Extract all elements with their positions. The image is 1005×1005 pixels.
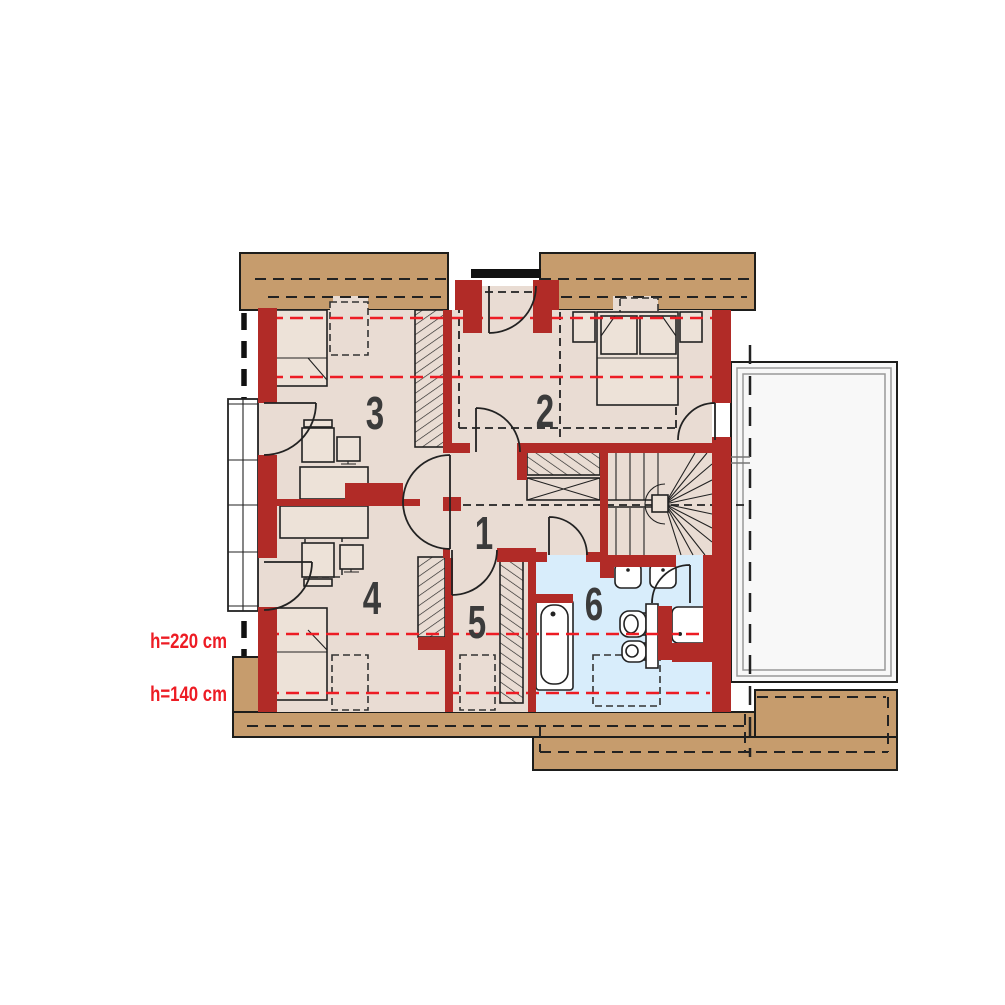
floorplan-drawing: 1 2 3 4 5 6 h=220 cm h=140 cm [0, 0, 1005, 1005]
nightstand-right [680, 312, 702, 342]
stairs-newel [652, 495, 668, 512]
room-label-5: 5 [468, 598, 486, 648]
desk-room4 [280, 506, 368, 538]
monitor-room4 [340, 545, 363, 569]
height-label-140: h=140 cm [150, 683, 227, 706]
chair-back-room3 [304, 420, 332, 427]
gable-windows [228, 399, 258, 611]
height-label-220: h=220 cm [150, 630, 227, 653]
nightstand-left [573, 312, 595, 342]
wardrobe-room5 [500, 560, 523, 703]
wardrobe-room4 [418, 557, 445, 637]
bathtub [536, 600, 573, 690]
bed-room2 [597, 312, 678, 405]
bathroom-partition [646, 604, 658, 668]
room-label-6: 6 [585, 580, 603, 630]
bed-room3 [275, 310, 327, 386]
chair-room4 [302, 543, 334, 577]
monitor-room3 [337, 437, 360, 461]
terrace [731, 362, 897, 682]
room-label-2: 2 [536, 387, 554, 437]
room-label-4: 4 [363, 574, 382, 624]
balcony-rail [471, 269, 541, 278]
wardrobe-room3 [415, 310, 445, 447]
bed-room4 [275, 608, 327, 700]
wardrobe-crossbox [527, 478, 600, 500]
room-label-1: 1 [475, 509, 493, 559]
room-label-3: 3 [366, 389, 384, 439]
floorplan-page: { "title": "attic floor plan", "rooms": … [0, 0, 1005, 1005]
